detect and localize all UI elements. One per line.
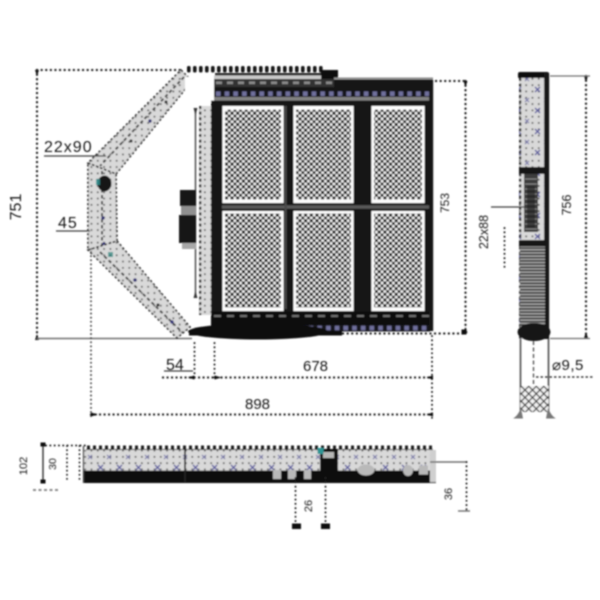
svg-text:⌀9,5: ⌀9,5 <box>552 357 584 374</box>
svg-text:30: 30 <box>47 458 59 470</box>
svg-text:36: 36 <box>443 488 455 500</box>
svg-text:678: 678 <box>303 358 328 375</box>
svg-text:898: 898 <box>245 396 270 413</box>
svg-text:753: 753 <box>438 193 452 213</box>
svg-text:756: 756 <box>560 195 574 216</box>
svg-text:22x88: 22x88 <box>477 215 491 249</box>
svg-text:22x90: 22x90 <box>44 139 93 156</box>
svg-text:751: 751 <box>8 194 25 221</box>
svg-text:45: 45 <box>58 215 78 232</box>
svg-text:102: 102 <box>18 457 30 475</box>
svg-text:26: 26 <box>303 500 315 512</box>
